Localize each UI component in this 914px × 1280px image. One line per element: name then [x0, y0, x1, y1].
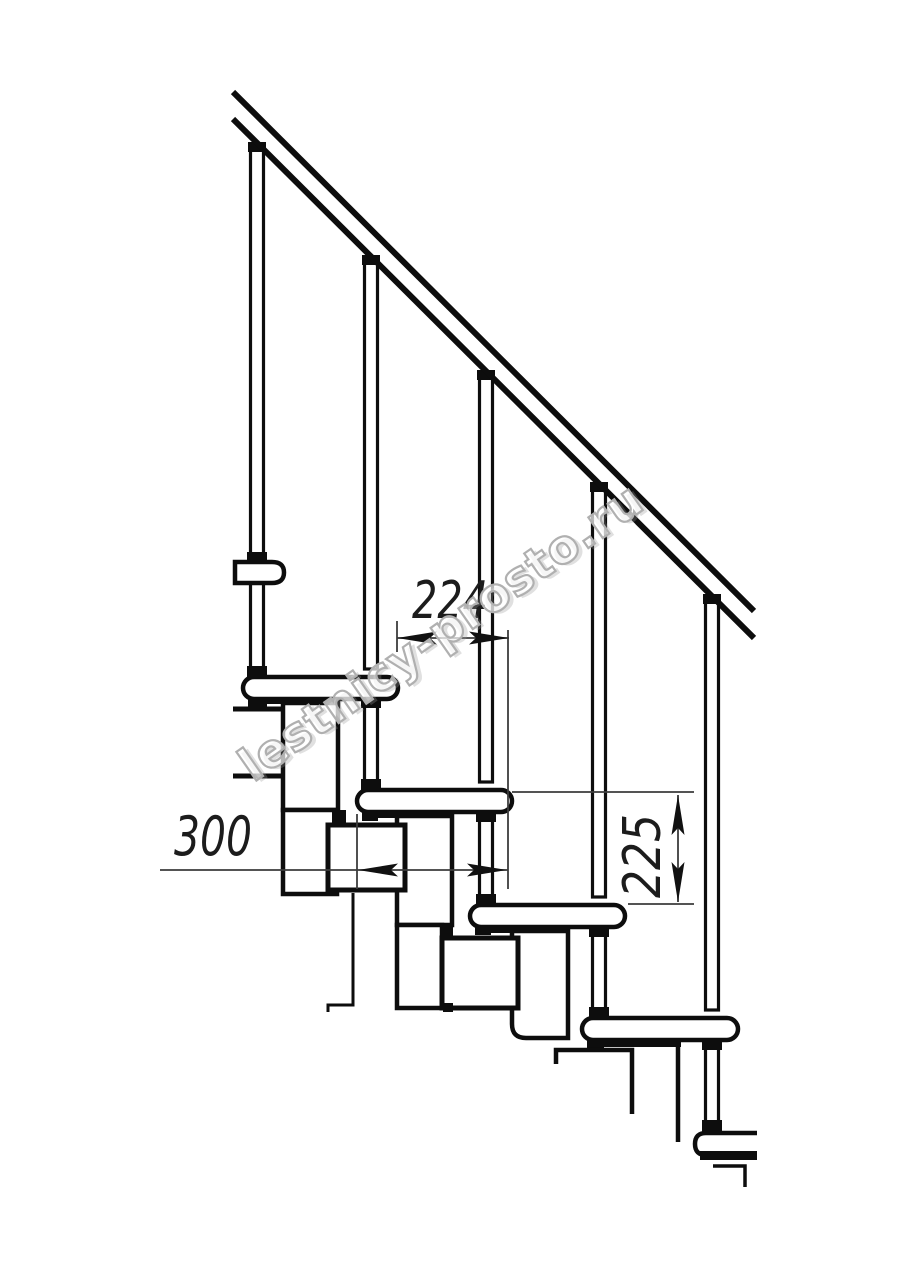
- tread-3: [470, 905, 625, 927]
- module-box-1: [328, 825, 405, 890]
- module-column-2: [397, 925, 442, 1008]
- drawing-canvas: 224 300 225 lestnicy-prosto.ru lestnicy-…: [0, 0, 914, 1280]
- staircase-elevation-drawing: 224 300 225 lestnicy-prosto.ru lestnicy-…: [0, 0, 914, 1280]
- tread-4: [582, 1018, 738, 1040]
- dim-225-label: 225: [613, 814, 673, 898]
- tread-2: [357, 790, 512, 812]
- module-box-2: [442, 938, 518, 1008]
- watermark-text: lestnicy-prosto.ru: [229, 472, 653, 792]
- landing-edge: [235, 562, 284, 583]
- dim-300-label: 300: [174, 805, 252, 868]
- baluster-1: [251, 150, 264, 669]
